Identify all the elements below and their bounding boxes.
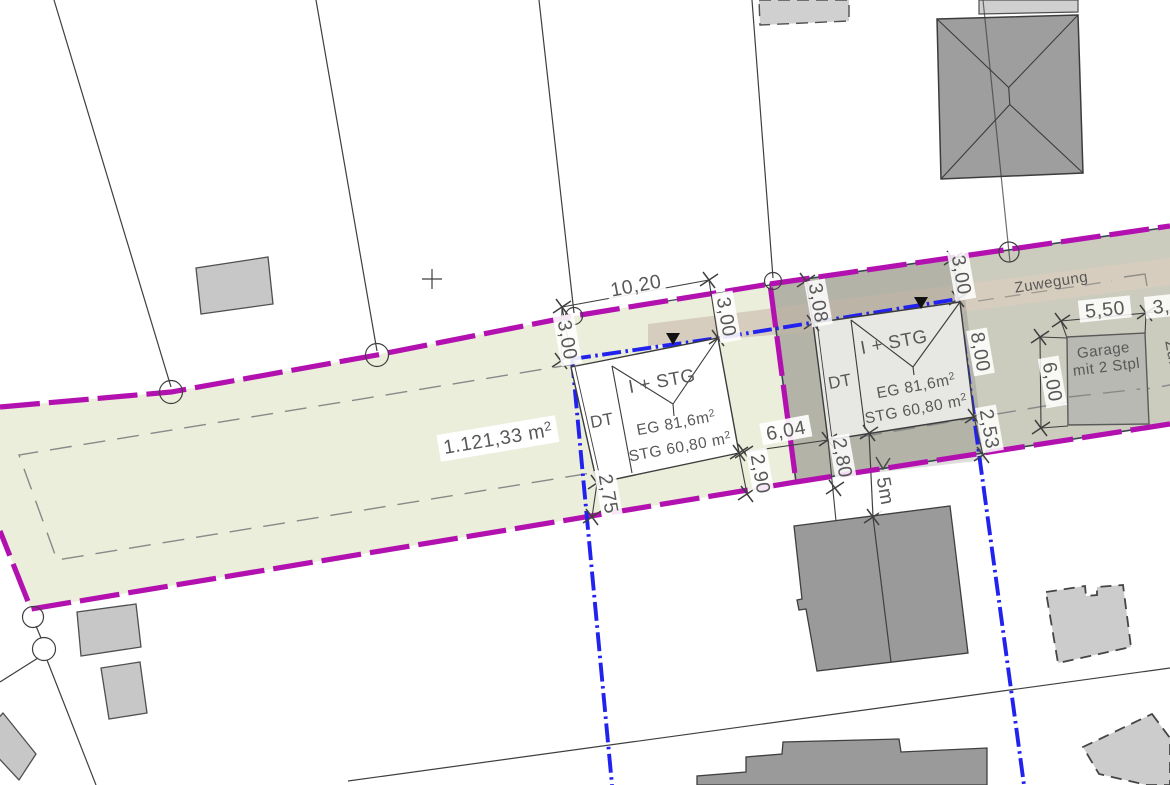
- svg-text:10,20: 10,20: [609, 271, 663, 302]
- svg-text:3,5: 3,5: [1152, 294, 1170, 319]
- svg-text:5,50: 5,50: [1084, 297, 1126, 323]
- svg-text:5m: 5m: [872, 475, 899, 506]
